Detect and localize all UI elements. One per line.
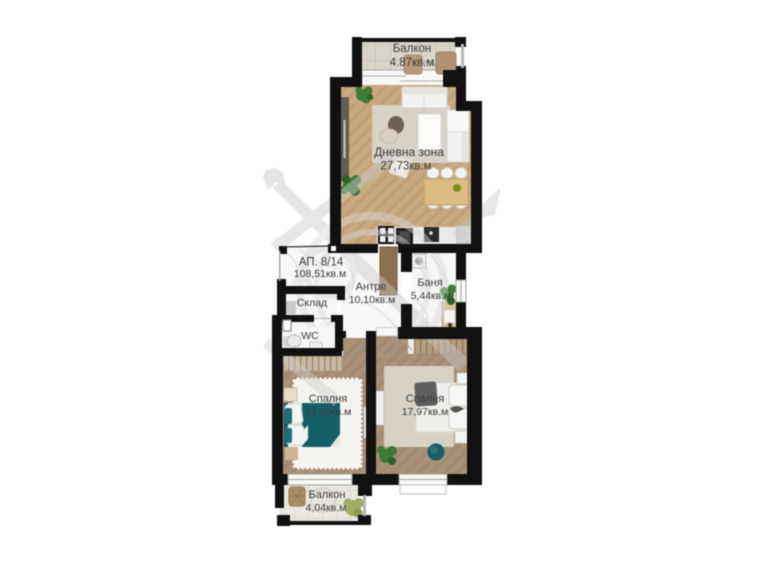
svg-text:WC: WC: [301, 330, 319, 342]
svg-text:Дневна зона: Дневна зона: [374, 145, 444, 159]
svg-text:5,44кв.м: 5,44кв.м: [411, 290, 452, 302]
svg-text:Балкон: Балкон: [393, 43, 432, 55]
svg-text:Балкон: Балкон: [309, 489, 346, 501]
svg-text:Баня: Баня: [417, 277, 442, 289]
svg-text:Спалня: Спалня: [309, 393, 348, 405]
svg-text:Спалня: Спалня: [406, 393, 445, 405]
svg-text:10,10кв.м: 10,10кв.м: [349, 294, 396, 306]
svg-text:14,80кв.м: 14,80кв.м: [305, 406, 352, 418]
svg-text:Антре: Антре: [356, 281, 387, 293]
svg-text:17,97кв.м: 17,97кв.м: [402, 406, 449, 418]
svg-text:27,73кв.м: 27,73кв.м: [380, 161, 431, 173]
svg-text:АП. 8/14: АП. 8/14: [299, 257, 344, 269]
svg-text:4,04кв.м: 4,04кв.м: [306, 502, 347, 514]
svg-text:Склад: Склад: [297, 297, 327, 309]
svg-text:108,51кв.м: 108,51кв.м: [294, 268, 346, 280]
svg-text:4.87кв.м: 4.87кв.м: [390, 57, 435, 69]
